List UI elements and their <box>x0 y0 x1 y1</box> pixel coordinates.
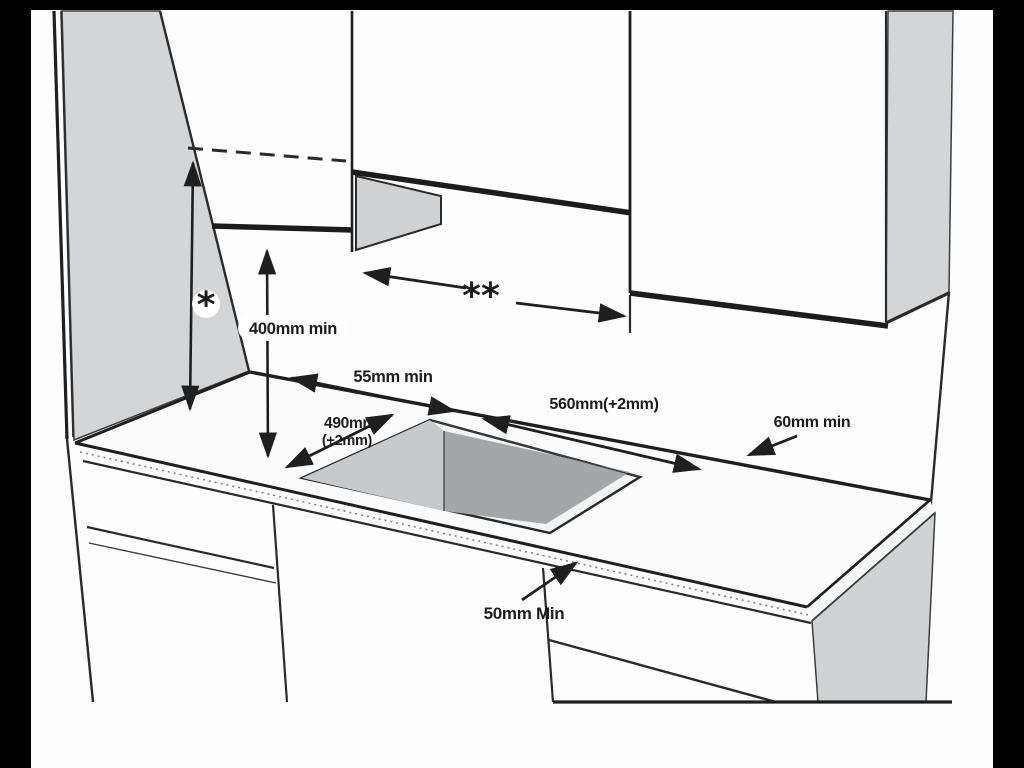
label-side-clearance: 60mm min <box>774 414 851 431</box>
frame-bar-top <box>0 0 1024 10</box>
right-wall-cabinet-front <box>630 11 888 324</box>
label-cutout-width: 560mm(+2mm) <box>549 396 658 413</box>
label-rear-clearance: 55mm min <box>353 368 432 386</box>
label-double-star: ** <box>462 276 500 317</box>
label-cutout-depth: 490mm <box>324 415 376 432</box>
scanned-page: * ** 400mm min 55mm min 560mm(+2mm) 490m… <box>0 0 1024 768</box>
label-cutout-depth-tol: (+2mm) <box>322 433 373 449</box>
label-cabinet-clearance: 400mm min <box>249 320 337 338</box>
installation-diagram: * ** 400mm min 55mm min 560mm(+2mm) 490m… <box>0 0 1024 768</box>
dim-arrow-cabinet-clearance <box>267 251 268 456</box>
frame-bar-right <box>993 0 1024 768</box>
label-star: * <box>197 285 216 326</box>
frame-bar-left <box>0 0 31 768</box>
right-cabinet-side-panel <box>886 11 953 322</box>
label-front-clearance: 50mm Min <box>484 604 565 623</box>
